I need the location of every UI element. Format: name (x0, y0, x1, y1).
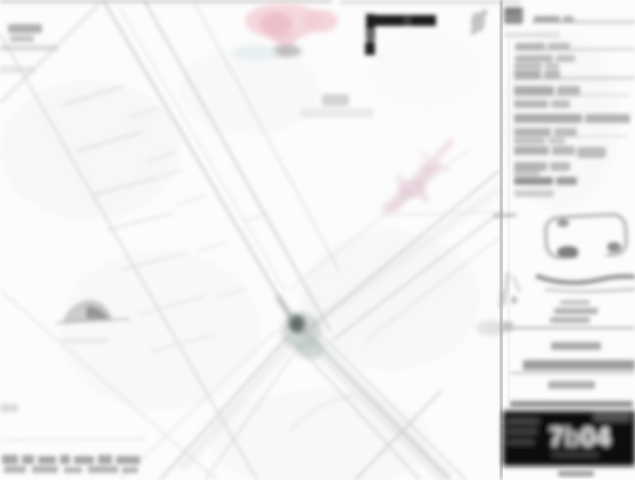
svg-text:7b04: 7b04 (549, 422, 611, 452)
